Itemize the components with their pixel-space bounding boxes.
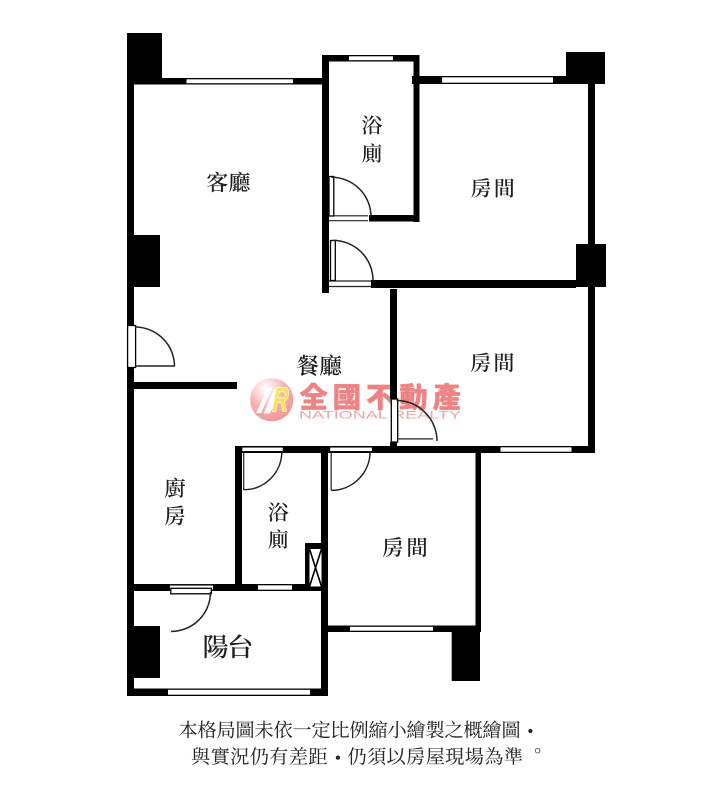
svg-text:NATIONAL REALTY: NATIONAL REALTY [299, 410, 462, 422]
